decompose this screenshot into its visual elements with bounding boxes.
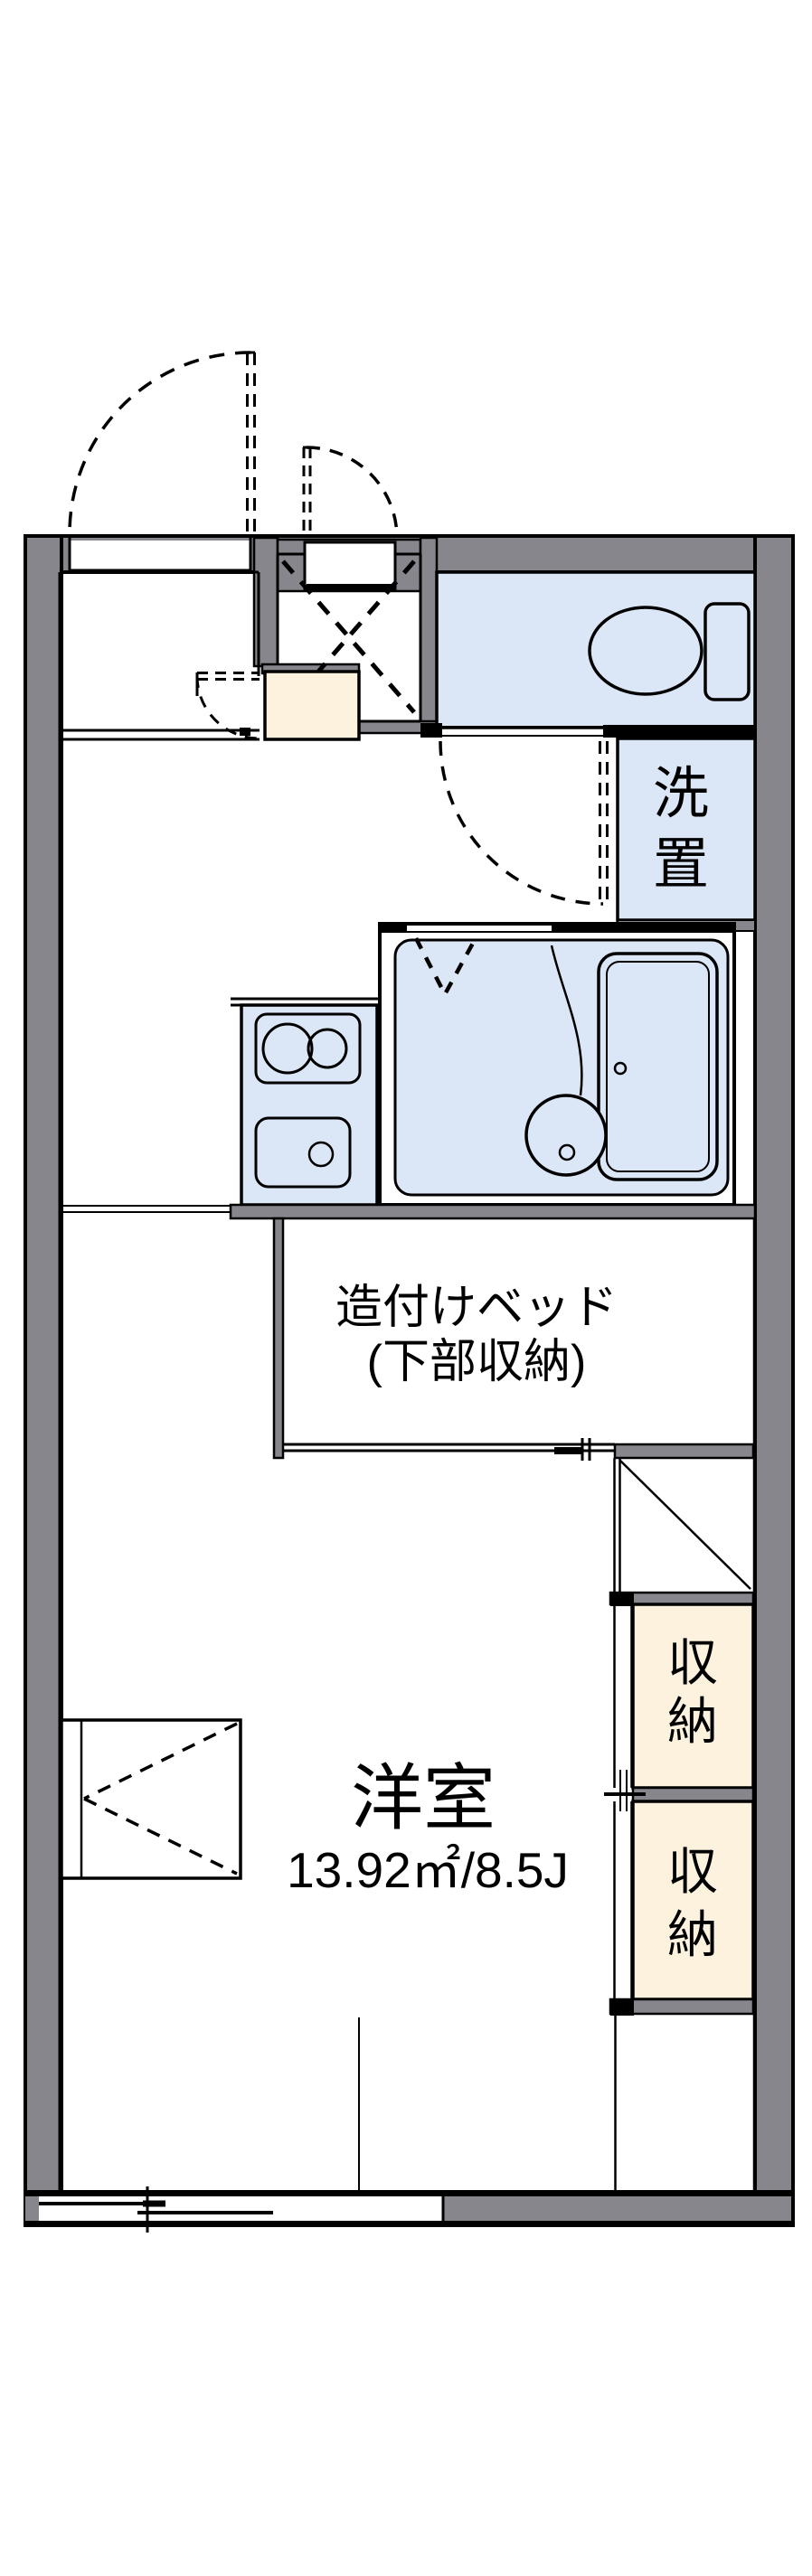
meter-niche — [305, 542, 395, 589]
bed-right-wall-bar — [615, 1444, 753, 1458]
entrance-block — [254, 538, 437, 739]
wall-left — [25, 536, 61, 2225]
toilet-room — [420, 572, 755, 738]
bed-left-wall — [274, 1218, 283, 1458]
bed-door-mark — [554, 1447, 583, 1454]
laundry-space: 洗 置 — [618, 738, 755, 931]
laundry-label-char2: 置 — [653, 833, 709, 896]
builtin-shelf — [61, 1720, 241, 1878]
door-stop — [240, 728, 250, 736]
toilet-tank — [705, 604, 749, 700]
front-room — [61, 572, 260, 739]
bathroom-top-wall-right — [552, 924, 734, 933]
closet1-label-char2: 納 — [667, 1693, 718, 1750]
window-band — [39, 2196, 443, 2222]
entrance-door-arc — [70, 353, 250, 533]
main-room-name: 洋室 — [351, 1758, 496, 1838]
laundry-label-char1: 洗 — [653, 763, 709, 825]
niche-door — [303, 447, 397, 538]
closet2 — [633, 1801, 753, 1999]
bathroom — [380, 924, 734, 1205]
toilet-wall-seg-left — [420, 723, 442, 738]
bed-label-line1: 造付けベッド — [335, 1282, 618, 1334]
closet1-top-corner — [610, 1593, 634, 1606]
wall-entrance-right-strip — [420, 538, 437, 730]
bed-area: 造付けベッド (下部収納) — [61, 1205, 755, 1461]
toilet-door-arc — [440, 741, 603, 904]
basin-outer — [526, 1095, 606, 1175]
closet-divider — [633, 1788, 753, 1801]
closet2-label-char2: 納 — [667, 1906, 718, 1963]
wall-right — [755, 536, 793, 2225]
main-room-size: 13.92㎡/8.5J — [287, 1842, 569, 1898]
floor-plan-drawing: 洗 置 — [0, 0, 812, 2576]
kitchen — [231, 999, 380, 1205]
niche-door-arc — [307, 447, 397, 538]
closet2-bottom-corner — [610, 1999, 634, 2016]
entrance-door — [70, 353, 255, 533]
bathroom-top-wall-left — [380, 924, 407, 933]
floor-plan: 洗 置 — [0, 0, 812, 2576]
main-room: 洋室 13.92㎡/8.5J — [287, 1758, 569, 1898]
genkan-tataki — [265, 672, 359, 739]
toilet-door — [440, 741, 608, 904]
toilet-bowl — [590, 607, 702, 694]
diag-closet-diagonal — [620, 1461, 751, 1589]
window-corner-left — [25, 2194, 39, 2223]
bed-label-line2: (下部収納) — [367, 1336, 587, 1388]
toilet-icon — [590, 604, 749, 700]
entrance-opening — [70, 541, 250, 569]
closet2-label-char1: 収 — [667, 1843, 718, 1900]
closet1-label-char1: 収 — [667, 1634, 718, 1691]
wall-under-kitchen-bath — [231, 1205, 755, 1218]
toilet-wall-seg-right — [603, 725, 755, 738]
bathtub-drain — [615, 1063, 626, 1074]
